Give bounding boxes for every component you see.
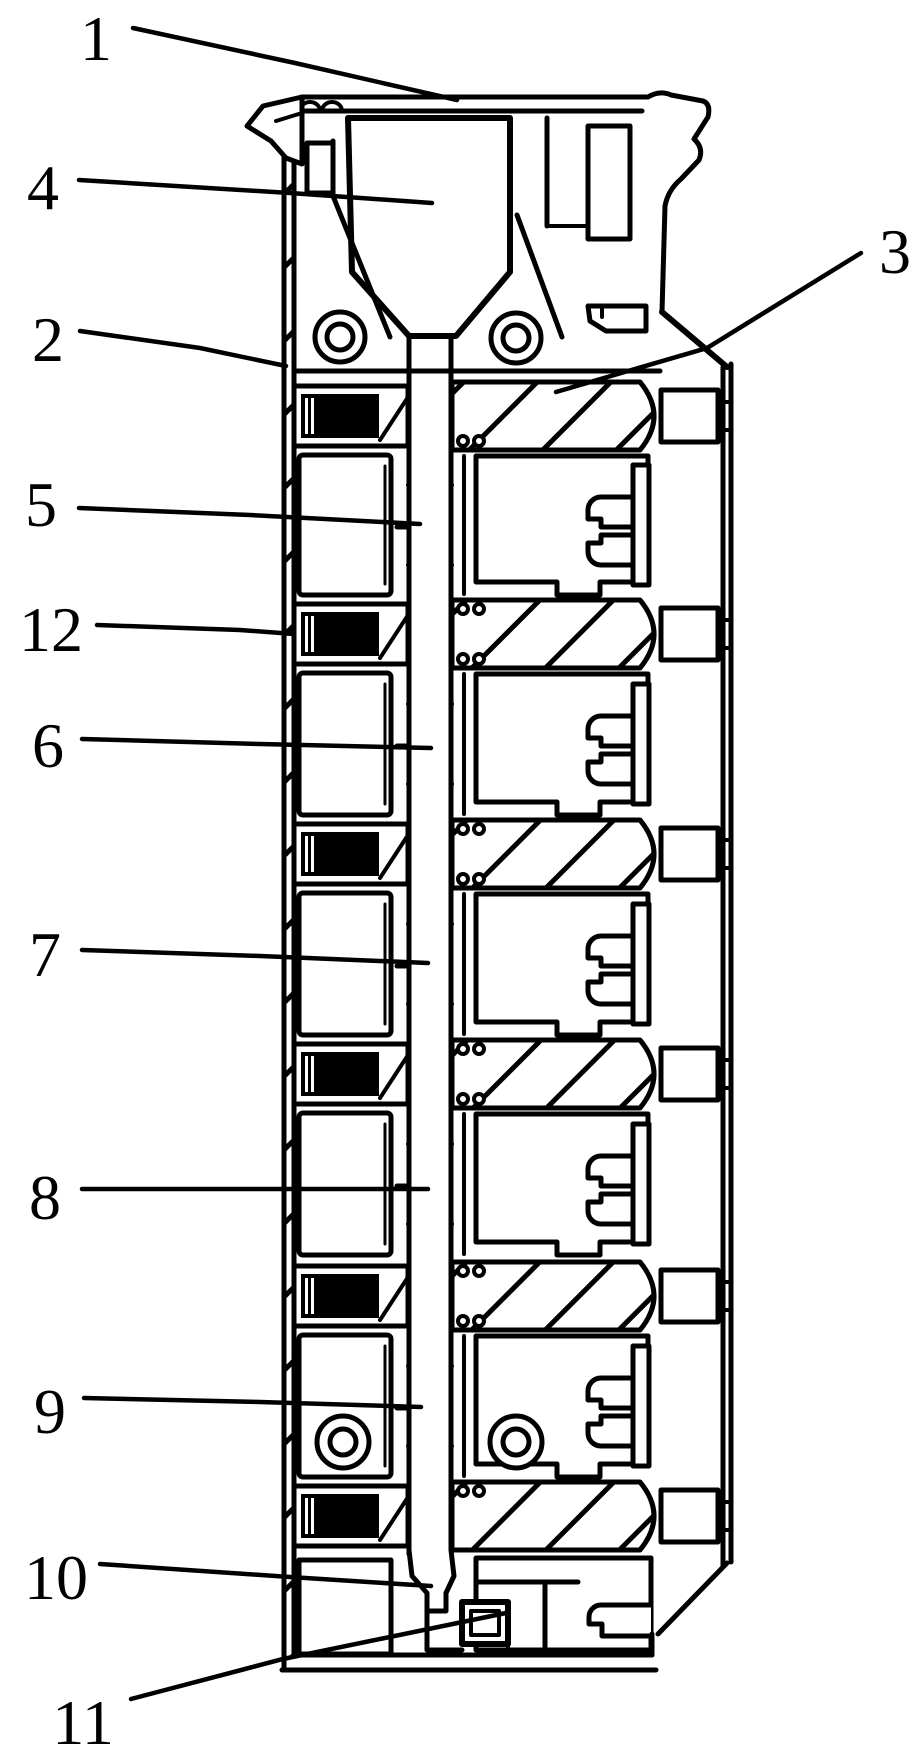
leader-line-12 xyxy=(97,625,294,634)
seal-band-row xyxy=(292,820,730,888)
part-label-7: 7 xyxy=(29,919,61,990)
part-label-9: 9 xyxy=(34,1376,66,1447)
part-label-5: 5 xyxy=(25,469,57,540)
leader-line-2 xyxy=(80,331,286,366)
part-label-2: 2 xyxy=(32,304,64,375)
seal-band-row xyxy=(292,1482,730,1550)
chamber-row xyxy=(299,1113,649,1255)
central-shaft xyxy=(407,334,453,1554)
patent-figure-page: 142351267891011 xyxy=(0,0,920,1753)
part-label-6: 6 xyxy=(32,710,64,781)
seal-band-row xyxy=(292,1262,730,1330)
part-label-8: 8 xyxy=(29,1162,61,1233)
chamber-row xyxy=(299,893,649,1035)
part-label-3: 3 xyxy=(879,216,911,287)
leader-line-1 xyxy=(133,28,457,100)
chamber-row xyxy=(299,455,649,595)
bottom-block xyxy=(282,1550,656,1670)
seal-band-row xyxy=(292,1040,730,1108)
part-label-4: 4 xyxy=(27,152,59,223)
part-label-1: 1 xyxy=(80,3,112,74)
figure-canvas: 142351267891011 xyxy=(0,0,920,1753)
seal-band-row xyxy=(292,382,730,450)
part-label-11: 11 xyxy=(52,1687,114,1753)
part-label-12: 12 xyxy=(19,594,83,665)
seal-band-row xyxy=(292,600,730,668)
part-label-10: 10 xyxy=(24,1542,88,1613)
